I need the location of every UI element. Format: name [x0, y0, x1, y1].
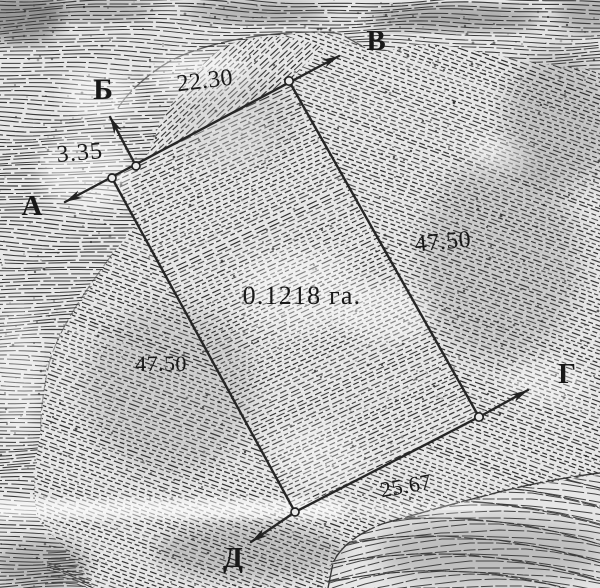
- svg-text:Г: Г: [558, 359, 576, 390]
- svg-text:47.50: 47.50: [414, 227, 473, 258]
- svg-text:А: А: [22, 190, 43, 222]
- svg-text:0.1218 га.: 0.1218 га.: [243, 281, 362, 310]
- svg-text:47.50: 47.50: [135, 351, 187, 376]
- svg-text:Б: Б: [93, 73, 113, 106]
- svg-text:3.35: 3.35: [55, 138, 104, 168]
- svg-text:В: В: [366, 25, 385, 57]
- svg-text:Д: Д: [223, 542, 243, 574]
